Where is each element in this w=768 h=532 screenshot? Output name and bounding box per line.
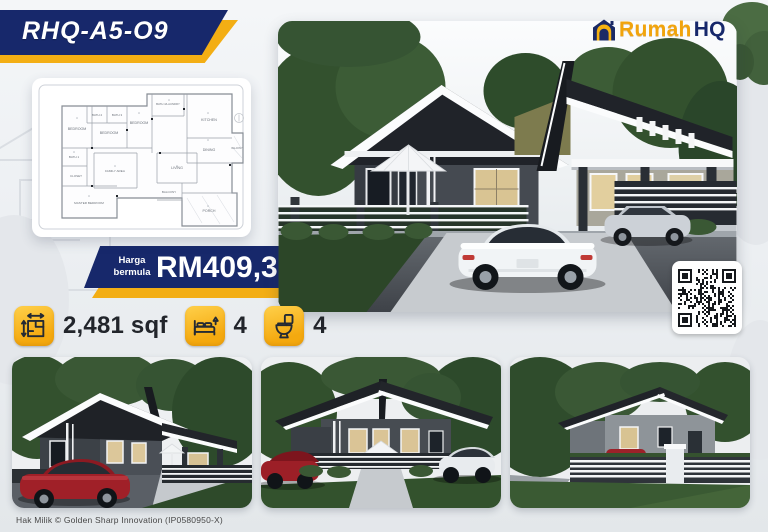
floor-area-icon <box>14 306 54 346</box>
house-render-thumb-rear-side <box>510 357 750 508</box>
house-logo-icon <box>592 19 616 41</box>
room-label: FAMILY AREA <box>105 169 126 173</box>
floor-plan-card: BEDROOM BATH 2 BATH 3 BEDROOM BEDROOM BA… <box>32 78 251 237</box>
toilet-icon <box>264 306 304 346</box>
feature-bathrooms-value: 4 <box>313 312 327 340</box>
plan-code-label: RHQ-A5-O9 <box>22 17 169 46</box>
room-label: BEDROOM <box>100 131 119 135</box>
brand-logo: Rumah HQ <box>592 18 726 42</box>
room-label: BEDROOM <box>130 121 149 125</box>
main-house-render <box>278 21 737 312</box>
price-banner: Harga bermula RM409,365 <box>84 246 286 299</box>
room-label: BATH 4/LAUNDRY <box>156 102 180 106</box>
price-prefix-label: Harga bermula <box>108 255 156 279</box>
room-label: CLOSET <box>70 174 82 178</box>
feature-bedrooms: 4 <box>185 306 248 346</box>
feature-area-value: 2,481 sqf <box>63 312 168 340</box>
features-bar: 2,481 sqf 4 <box>14 304 327 348</box>
room-label: MASTER BEDROOM <box>74 201 104 205</box>
house-render-thumb-front-left <box>12 357 252 508</box>
room-label: DINING <box>203 148 216 152</box>
feature-bedrooms-value: 4 <box>234 312 248 340</box>
room-label: BATH 1 <box>69 155 80 159</box>
thumbnail-row <box>12 357 750 508</box>
floor-plan-drawing: BEDROOM BATH 2 BATH 3 BEDROOM BEDROOM BA… <box>32 78 251 237</box>
title-banner: RHQ-A5-O9 <box>0 8 240 64</box>
room-label: KITCHEN <box>201 118 217 122</box>
qr-code <box>672 261 742 334</box>
room-label: BEDROOM <box>68 127 87 131</box>
room-label: BATH 3 <box>112 113 123 117</box>
room-label: BATH 2 <box>92 113 103 117</box>
room-label: BALCONY <box>162 190 176 194</box>
property-poster: Harga bermula RM409,365 <box>0 0 768 532</box>
brand-name-secondary: HQ <box>694 18 726 42</box>
bed-icon <box>185 306 225 346</box>
room-label: BALCONY <box>232 147 243 150</box>
brand-name-primary: Rumah <box>619 18 692 42</box>
house-render-thumb-front-center <box>261 357 501 508</box>
feature-bathrooms: 4 <box>264 306 327 346</box>
room-label: PORCH <box>203 209 216 213</box>
feature-area: 2,481 sqf <box>14 306 168 346</box>
room-label: LIVING <box>171 166 183 170</box>
copyright-text: Hak Milik © Golden Sharp Innovation (IP0… <box>16 515 223 525</box>
